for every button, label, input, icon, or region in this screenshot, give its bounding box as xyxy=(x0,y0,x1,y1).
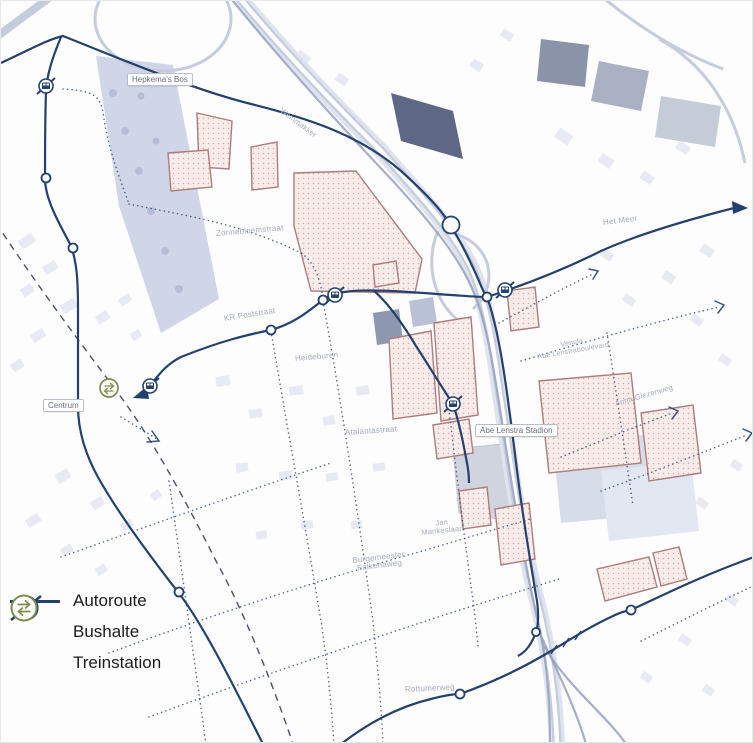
label-abe-lenstra-stadion: Abe Lenstra Stadion xyxy=(475,424,558,437)
bus-stop-icon xyxy=(141,378,159,394)
label-hepkemas-bos: Hepkema's Bos xyxy=(127,73,193,86)
route-arrow-east xyxy=(732,201,748,214)
hepkemas-bos-area xyxy=(96,56,219,333)
legend-label-treinstation: Treinstation xyxy=(73,653,161,673)
roundabout-node xyxy=(443,217,460,234)
train-station-icon xyxy=(100,379,118,397)
legend-row-treinstation: Treinstation xyxy=(7,653,161,673)
train-station-icon xyxy=(7,591,41,625)
legend-label-bushalte: Bushalte xyxy=(73,622,139,642)
legend: Autoroute Bushalte Treinstation xyxy=(7,591,161,673)
map-canvas[interactable]: Hepkema's Bos Weinmakker Zonnebloemstraa… xyxy=(0,0,753,743)
label-centrum: Centrum xyxy=(43,399,84,412)
legend-label-autoroute: Autoroute xyxy=(73,591,147,611)
bus-stop-icon xyxy=(37,78,55,94)
legend-row-bushalte: Bushalte xyxy=(7,622,161,642)
